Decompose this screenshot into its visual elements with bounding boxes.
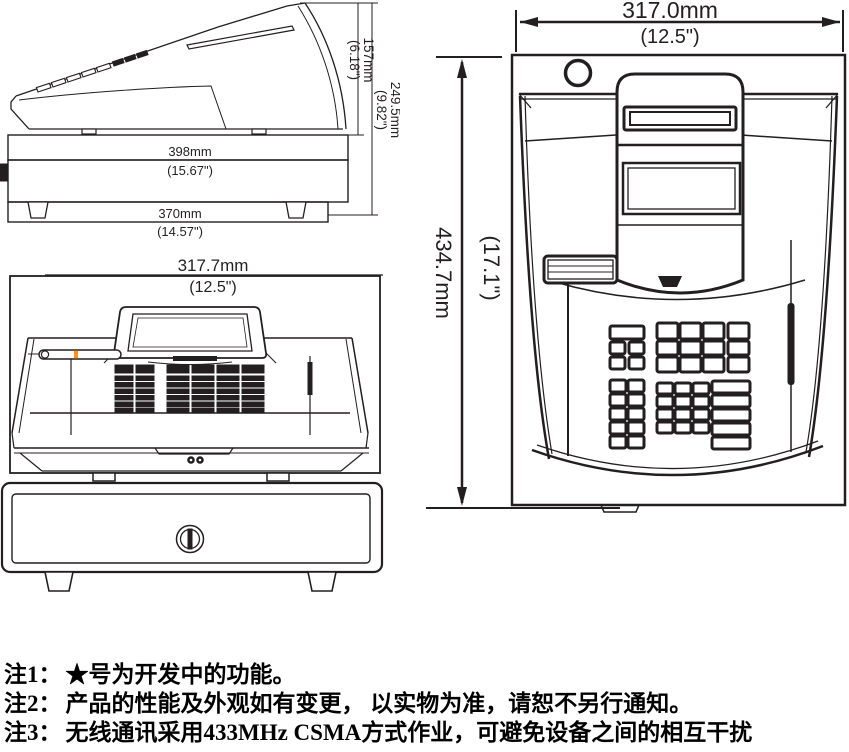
top-keyboard [610,323,750,449]
top-left-slot-panel [544,256,617,283]
front-view-drawing: 317.7mm (12.5") [0,255,390,600]
front-width-dimension-mm: 317.7mm [178,256,249,275]
top-stylus-groove [788,303,795,385]
front-width-dimension-in: (12.5") [189,279,236,296]
cash-drawer [2,483,382,591]
top-screw-hole [566,61,591,86]
footnotes: 注1：★号为开发中的功能。 注2：产品的性能及外观如有变更， 以实物为准，请恕不… [4,660,849,747]
technical-drawing-canvas: 398mm (15.67") 370mm (14.57") 157mm (6.1… [0,0,849,752]
top-depth-dimension-mm: 434.7mm [431,227,456,319]
side-base-depth-dimension-mm: 370mm [158,206,201,221]
paper-spindle [28,350,121,359]
printer-paper-slot [624,107,736,130]
top-width-dimension-mm: 317.0mm [622,0,718,23]
side-keyboard-keys [36,51,148,93]
top-view-body [512,55,845,512]
side-total-height-dimension-in: (9.82") [374,90,389,130]
top-depth-dimension-in: (17.1") [479,235,504,300]
drawer-lock [177,526,204,553]
note-2-text: 产品的性能及外观如有变更， 以实物为准，请恕不另行通知。 [66,691,693,716]
side-depth-dimension-mm: 398mm [168,144,211,159]
spindle-orange-mark [74,351,78,359]
note-line-1: 注1：★号为开发中的功能。 [4,660,849,689]
note-line-3: 注3：无线通讯采用433MHz CSMA方式作业，可避免设备之间的相互干扰 [4,718,849,747]
side-view-drawing: 398mm (15.67") 370mm (14.57") 157mm (6.1… [0,0,400,250]
front-keyboard [115,365,264,412]
front-display [104,307,276,365]
note-2-label: 注2： [4,691,62,716]
side-display-height-dimension-in: (6.18") [347,40,362,80]
note-line-2: 注2：产品的性能及外观如有变更， 以实物为准，请恕不另行通知。 [4,689,849,718]
side-display-height-dimension-mm: 157mm [361,37,376,82]
printer-window [623,163,740,214]
note-3-label: 注3： [4,720,62,745]
side-base-depth-dimension-in: (14.57") [157,224,203,239]
top-view-drawing: 317.0mm (12.5") 434.7mm (17.1") [420,0,849,530]
side-depth-dimension-in: (15.67") [167,163,213,178]
side-display-panel [187,26,294,49]
note-1-text: ★号为开发中的功能。 [66,662,296,687]
front-screw-holes [187,456,204,464]
top-width-dimension-in: (12.5") [640,26,699,48]
side-view-body [11,3,346,134]
note-1-label: 注1： [4,662,62,687]
note-3-text: 无线通讯采用433MHz CSMA方式作业，可避免设备之间的相互干扰 [66,720,753,745]
side-dimension-lines [300,3,378,215]
top-printer-unit [617,74,743,293]
front-view-body [10,276,380,481]
